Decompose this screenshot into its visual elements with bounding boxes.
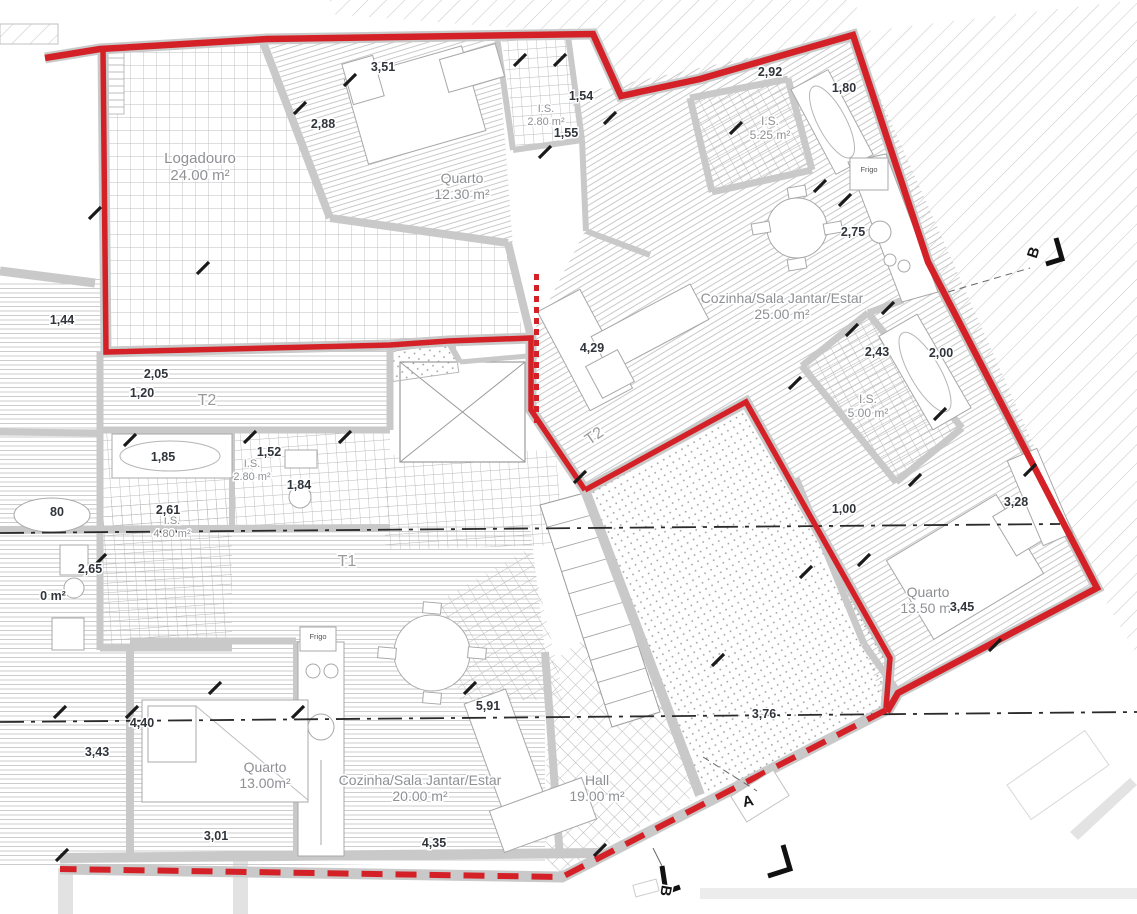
dim-label: 2,61 bbox=[156, 503, 180, 517]
room-area-label: 25.00 m² bbox=[754, 306, 810, 322]
appliance-label: Frigo bbox=[860, 165, 877, 174]
room-label: Quarto bbox=[907, 584, 950, 600]
red-annotation-mark bbox=[534, 296, 539, 302]
dim-label: 3,01 bbox=[204, 829, 228, 843]
room-area-label: 13.00m² bbox=[239, 775, 291, 791]
dim-label: 1,55 bbox=[554, 126, 578, 140]
room-label: I.S. bbox=[538, 103, 555, 115]
dim-label: 1,54 bbox=[569, 89, 593, 103]
stove-burner bbox=[898, 260, 910, 272]
chair bbox=[423, 692, 442, 705]
room-area-label: 13.50 m² bbox=[900, 600, 956, 616]
dim-label: 2,92 bbox=[758, 65, 782, 79]
wall-segment bbox=[0, 432, 100, 433]
dim-label: 4,40 bbox=[130, 716, 154, 730]
sink-bottom bbox=[308, 714, 334, 740]
dim-label: 1,84 bbox=[287, 478, 311, 492]
red-annotation-mark bbox=[534, 307, 539, 313]
room-label: I.S. bbox=[859, 392, 877, 406]
dim-label: 2,43 bbox=[865, 345, 889, 359]
red-annotation-mark bbox=[534, 417, 539, 423]
dim-label: 4,35 bbox=[422, 836, 446, 850]
red-annotation-mark bbox=[534, 406, 539, 412]
chair bbox=[423, 602, 442, 615]
chair bbox=[378, 647, 397, 660]
sink-top bbox=[869, 221, 891, 243]
dining-table-top bbox=[767, 198, 827, 258]
pillow bbox=[148, 706, 196, 762]
room-area-label: 5.00 m² bbox=[848, 406, 889, 420]
dim-label: 4,29 bbox=[580, 341, 604, 355]
room-label: Quarto bbox=[244, 759, 287, 775]
room-label: Hall bbox=[585, 772, 609, 788]
dim-label: 5,91 bbox=[476, 699, 500, 713]
red-annotation-mark bbox=[534, 362, 539, 368]
appliance-label: Frigo bbox=[309, 632, 326, 641]
sink-counter bbox=[285, 450, 317, 468]
dim-label: 3,51 bbox=[371, 60, 395, 74]
dim-label: 0 m² bbox=[40, 589, 66, 603]
room-label: Quarto bbox=[441, 170, 484, 186]
room-area-label: 19.00 m² bbox=[569, 788, 625, 804]
dim-label: 3,43 bbox=[85, 745, 109, 759]
below-plan-strip bbox=[58, 868, 73, 914]
red-annotation-mark bbox=[534, 384, 539, 390]
stove-burner bbox=[306, 664, 320, 678]
neighbor-outline bbox=[1007, 731, 1109, 820]
stove-burner bbox=[324, 664, 338, 678]
room-area-label: 2.80 m² bbox=[233, 471, 271, 483]
fridge-top-box bbox=[850, 158, 888, 190]
dim-label: 2,88 bbox=[311, 117, 335, 131]
red-annotation-mark bbox=[534, 395, 539, 401]
room-area-label: 4.80 m² bbox=[153, 528, 191, 540]
red-annotation-mark bbox=[534, 373, 539, 379]
dim-label: 1,00 bbox=[832, 502, 856, 516]
unit-type-label: T1 bbox=[338, 553, 357, 570]
stove-burner bbox=[884, 254, 896, 266]
red-annotation-mark bbox=[534, 318, 539, 324]
floor-plan-canvas: Logadouro24.00 m²Quarto12.30 m²I.S.2.80 … bbox=[0, 0, 1137, 914]
dim-label: 3,76 bbox=[752, 707, 776, 721]
wall-segment bbox=[0, 271, 95, 283]
unit-type-label: T2 bbox=[198, 392, 217, 409]
dim-label: 1,52 bbox=[257, 445, 281, 459]
room-label: Logadouro bbox=[164, 150, 236, 167]
section-leader-b2 bbox=[653, 848, 662, 866]
red-annotation-mark bbox=[534, 340, 539, 346]
dim-label: 2,00 bbox=[929, 346, 953, 360]
neighbor-strip bbox=[700, 888, 1137, 899]
room-label: Cozinha/Sala Jantar/Estar bbox=[701, 290, 864, 306]
dim-label: 1,85 bbox=[151, 450, 175, 464]
room-area-label: 5.25 m² bbox=[750, 128, 791, 142]
dim-label: 1,20 bbox=[130, 386, 154, 400]
red-annotation-mark bbox=[534, 274, 539, 280]
dim-label: 2,75 bbox=[841, 225, 865, 239]
red-annotation-mark bbox=[534, 329, 539, 335]
dim-label: 80 bbox=[50, 505, 64, 519]
washer bbox=[52, 618, 84, 650]
dim-label: 1,44 bbox=[50, 313, 74, 327]
room-area-label: 24.00 m² bbox=[170, 167, 229, 184]
dim-label: 1,80 bbox=[832, 81, 856, 95]
red-annotation-mark bbox=[534, 285, 539, 291]
section-marker-label: B bbox=[656, 884, 675, 898]
room-label: I.S. bbox=[761, 114, 779, 128]
chair bbox=[468, 647, 487, 660]
room-area-label: 12.30 m² bbox=[434, 186, 490, 202]
red-annotation-mark bbox=[534, 351, 539, 357]
room-label: I.S. bbox=[244, 458, 261, 470]
section-box-b2 bbox=[633, 879, 659, 897]
section-mark-a bbox=[768, 845, 790, 876]
floor-t2-lower-tiles bbox=[385, 450, 565, 550]
dim-label: 3,28 bbox=[1004, 495, 1028, 509]
dim-label: 2,65 bbox=[78, 562, 102, 576]
wall-segment bbox=[460, 356, 528, 362]
floor-plan-svg: Logadouro24.00 m²Quarto12.30 m²I.S.2.80 … bbox=[0, 0, 1137, 914]
dim-label: 3,45 bbox=[950, 600, 974, 614]
bidet bbox=[64, 578, 84, 598]
dining-table-bottom bbox=[394, 615, 470, 691]
room-area-label: 20.00 m² bbox=[392, 788, 448, 804]
dim-label: 2,05 bbox=[144, 367, 168, 381]
room-label: Cozinha/Sala Jantar/Estar bbox=[339, 772, 502, 788]
neighbor-diagonal-band bbox=[1070, 778, 1137, 840]
hatch-topleft-stub bbox=[0, 24, 58, 44]
wall-segment bbox=[582, 140, 586, 231]
